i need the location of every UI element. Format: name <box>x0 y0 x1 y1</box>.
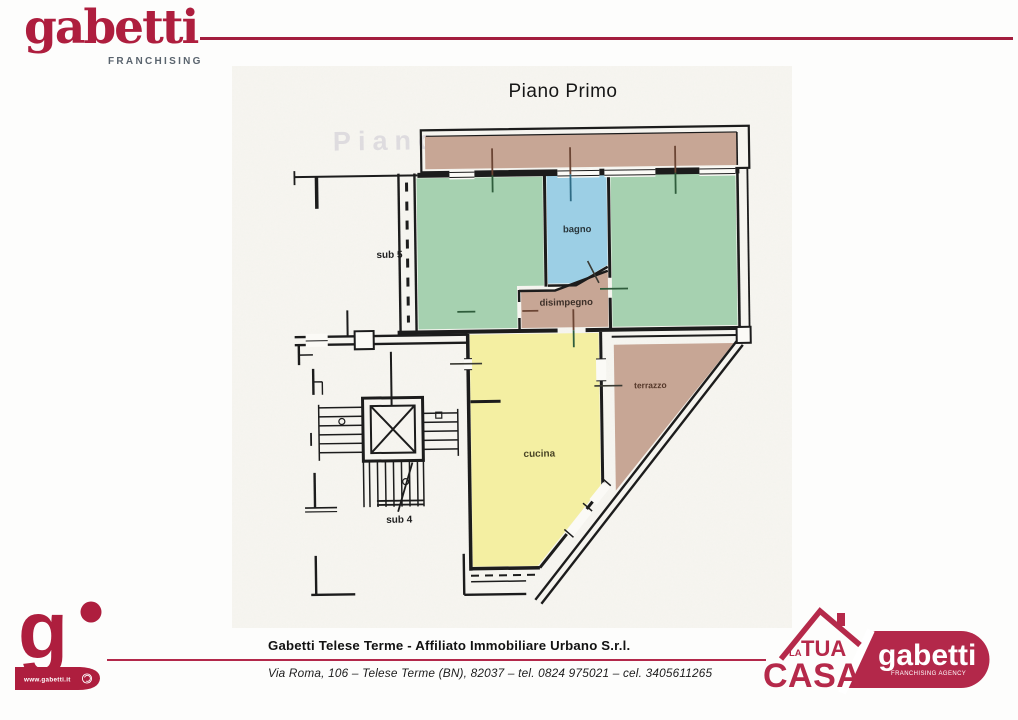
gabetti-logo-subtext: FRANCHISING <box>108 56 203 67</box>
label-disimpegno: disimpegno <box>539 297 593 309</box>
room-right-fill <box>610 173 737 327</box>
pill-brand: gabetti <box>878 639 976 672</box>
pill-subtext: FRANCHISING AGENCY <box>891 671 966 677</box>
label-bagno: bagno <box>563 224 592 235</box>
gabetti-logo: gabetti <box>24 4 197 51</box>
footer-agency-name: Gabetti Telese Terme - Affiliato Immobil… <box>268 638 630 653</box>
footer-address: Via Roma, 106 – Telese Terme (BN), 82037… <box>268 666 712 680</box>
flyer-page: gabetti FRANCHISING Piano Primo Piano <box>0 0 1018 720</box>
label-sub5: sub 5 <box>376 250 403 261</box>
g-mark: g <box>18 592 68 676</box>
la-tua-casa-logo: gabetti FRANCHISING AGENCY LA TUA CASA <box>758 596 1010 702</box>
header-rule <box>200 37 1013 40</box>
gabetti-g-logo: g www.gabetti.it <box>12 592 212 700</box>
label-terrazzo: terrazzo <box>634 380 667 390</box>
label-cucina: cucina <box>523 449 555 460</box>
plan-title: Piano Primo <box>509 81 618 102</box>
website-url[interactable]: www.gabetti.it <box>23 677 71 684</box>
floor-plan: Piano Primo Piano <box>232 66 792 628</box>
balcony-fill <box>425 132 737 169</box>
g-mark-dot <box>81 602 102 623</box>
casa-casa: CASA <box>763 657 861 695</box>
label-sub4: sub 4 <box>386 515 413 526</box>
